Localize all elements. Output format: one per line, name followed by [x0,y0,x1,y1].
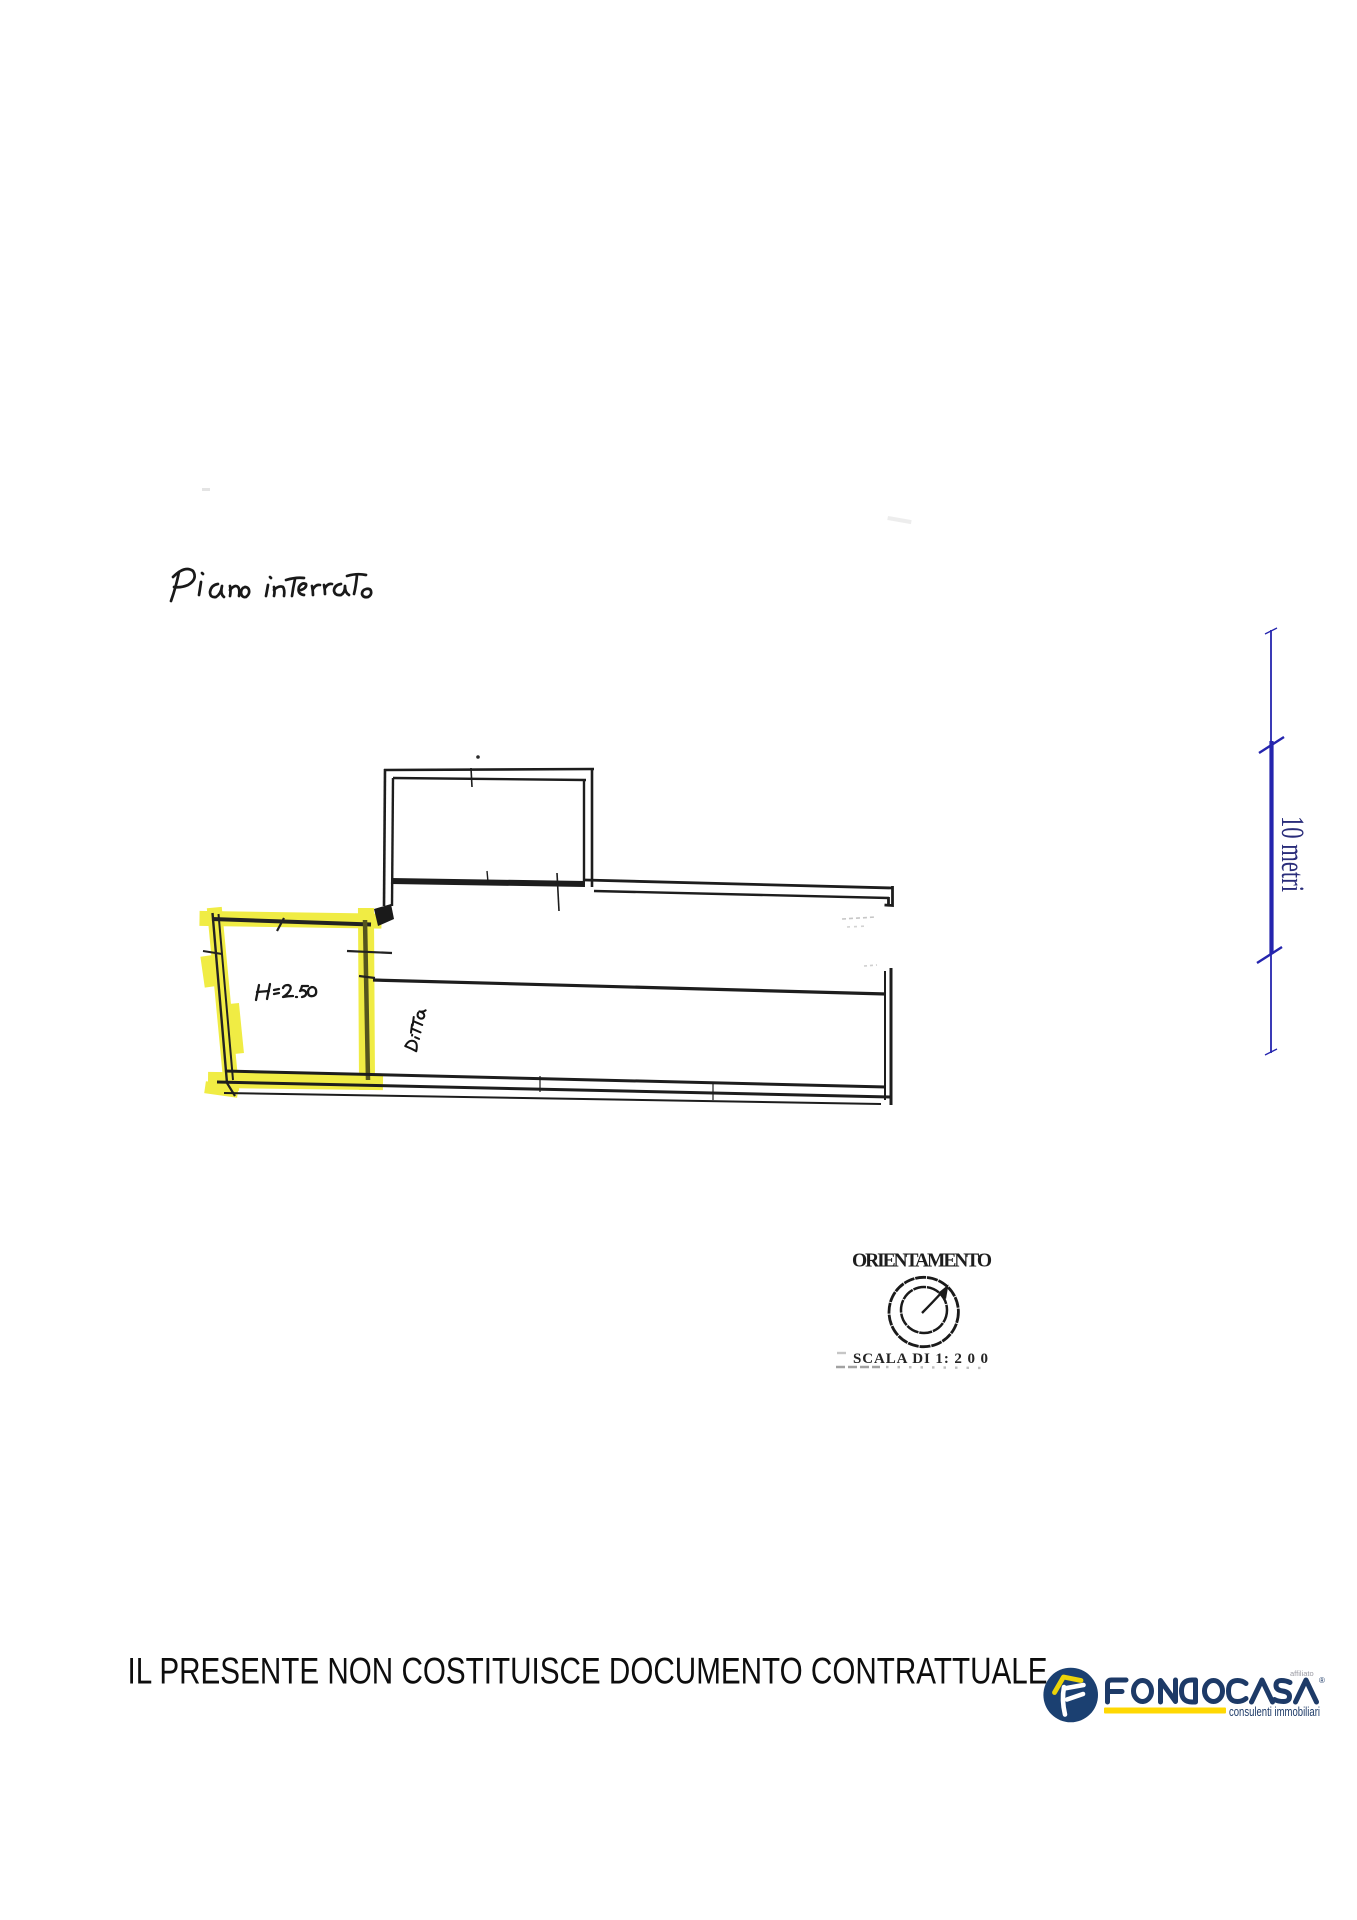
svg-text:10 metri: 10 metri [1274,816,1310,892]
svg-text:affiliato: affiliato [1290,1669,1314,1678]
svg-text:consulenti immobiliari: consulenti immobiliari [1229,1705,1320,1719]
svg-text:ORIENTAMENTO: ORIENTAMENTO [852,1251,992,1272]
svg-text:IL PRESENTE NON COSTITUISCE DO: IL PRESENTE NON COSTITUISCE DOCUMENTO CO… [128,1651,1048,1692]
svg-text:®: ® [1319,1676,1325,1685]
svg-text:SCALA DI 1: 2 0 0: SCALA DI 1: 2 0 0 [853,1351,988,1367]
